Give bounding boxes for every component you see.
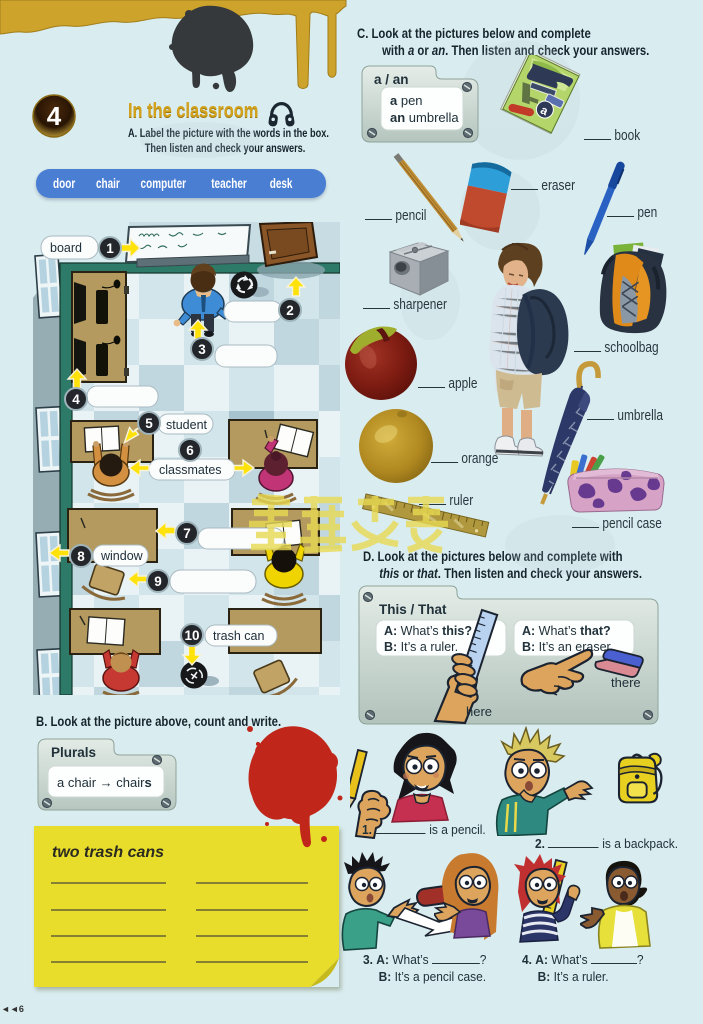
svg-text:B: It’s a ruler.: B: It’s a ruler. bbox=[384, 640, 458, 654]
svg-text:there: there bbox=[611, 675, 641, 690]
svg-text:a pen: a pen bbox=[390, 93, 423, 108]
svg-text:A: What’s this?: A: What’s this? bbox=[384, 624, 472, 638]
svg-text:here: here bbox=[466, 704, 492, 719]
svg-text:a / an: a / an bbox=[374, 72, 409, 87]
svg-text:This / That: This / That bbox=[379, 602, 447, 617]
svg-text:A: What’s that?: A: What’s that? bbox=[522, 624, 611, 638]
svg-text:B: It’s an eraser.: B: It’s an eraser. bbox=[522, 640, 614, 654]
svg-text:an umbrella: an umbrella bbox=[390, 110, 459, 125]
